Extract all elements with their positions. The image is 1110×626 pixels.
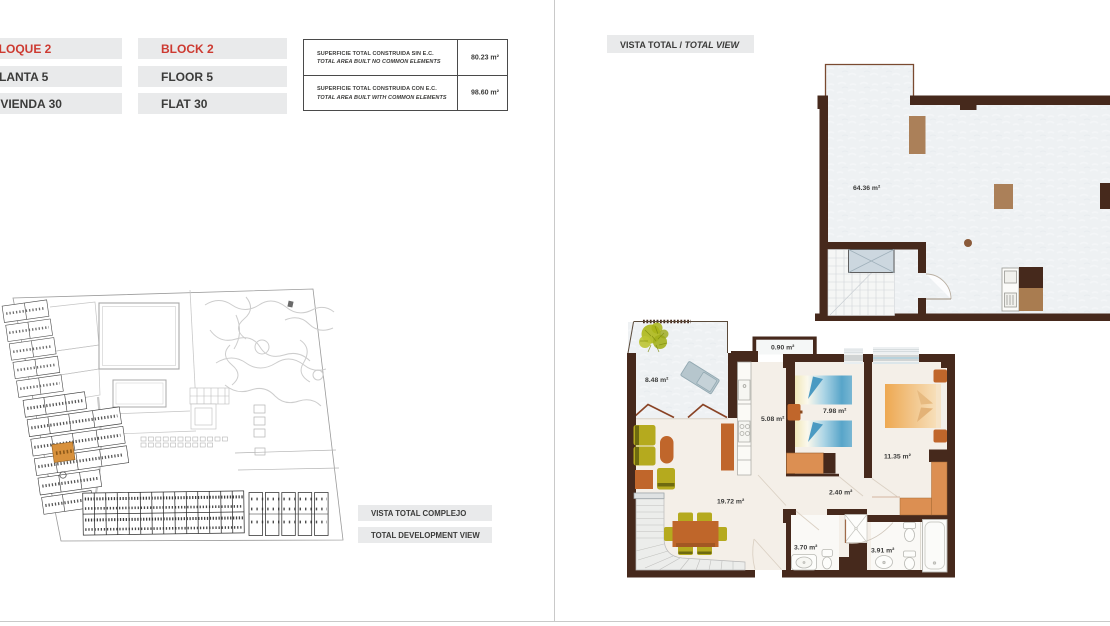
- svg-text:2.40 m²: 2.40 m²: [829, 490, 853, 497]
- svg-text:3.91 m²: 3.91 m²: [871, 548, 895, 555]
- svg-text:11.35 m²: 11.35 m²: [884, 454, 912, 461]
- svg-text:64.36 m²: 64.36 m²: [853, 185, 881, 192]
- svg-text:5.08 m²: 5.08 m²: [761, 416, 785, 423]
- svg-text:8.48 m²: 8.48 m²: [645, 377, 669, 384]
- svg-text:19.72 m²: 19.72 m²: [717, 499, 745, 506]
- svg-text:3.70 m²: 3.70 m²: [794, 545, 818, 552]
- svg-text:0.90 m²: 0.90 m²: [771, 345, 795, 352]
- svg-text:7.98 m²: 7.98 m²: [823, 408, 847, 415]
